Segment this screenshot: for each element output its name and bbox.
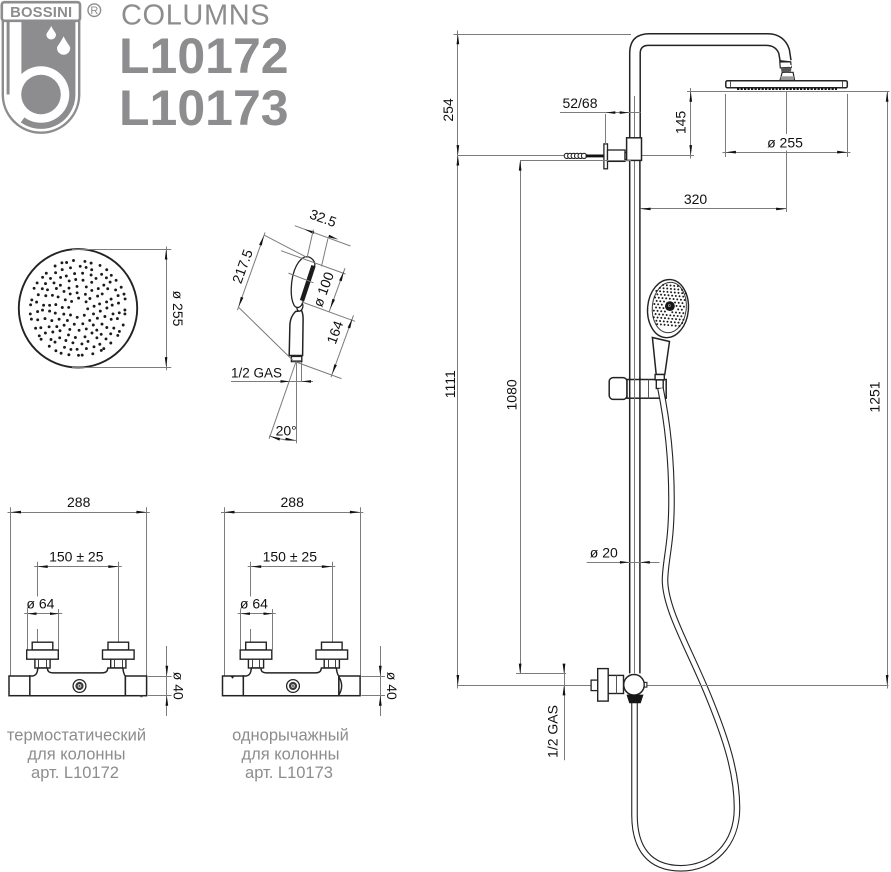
svg-text:термостатический: термостатический <box>7 727 146 745</box>
svg-text:320: 320 <box>684 191 708 207</box>
svg-text:1/2 GAS: 1/2 GAS <box>231 365 282 380</box>
svg-text:COLUMNS: COLUMNS <box>121 0 270 32</box>
svg-text:1111: 1111 <box>442 370 458 398</box>
svg-text:BOSSINI: BOSSINI <box>10 5 72 21</box>
svg-text:164: 164 <box>323 318 346 346</box>
svg-text:ø 40: ø 40 <box>171 672 187 700</box>
svg-text:для колонны: для колонны <box>27 745 125 763</box>
svg-text:L10172: L10172 <box>119 28 289 84</box>
svg-text:1/2 GAS: 1/2 GAS <box>544 705 560 758</box>
svg-text:арт. L10172: арт. L10172 <box>31 764 119 782</box>
svg-text:1080: 1080 <box>504 379 520 410</box>
svg-text:288: 288 <box>281 494 305 510</box>
svg-text:145: 145 <box>673 111 689 135</box>
svg-text:20°: 20° <box>276 423 297 439</box>
svg-text:арт. L10173: арт. L10173 <box>245 764 333 782</box>
svg-text:для колонны: для колонны <box>241 745 339 763</box>
svg-text:R: R <box>90 5 98 17</box>
svg-text:ø 255: ø 255 <box>767 135 803 151</box>
svg-text:однорычажный: однорычажный <box>232 727 349 745</box>
svg-text:ø 40: ø 40 <box>384 672 400 700</box>
svg-text:52/68: 52/68 <box>562 95 597 111</box>
svg-text:L10173: L10173 <box>119 80 289 136</box>
svg-text:ø 255: ø 255 <box>170 291 186 327</box>
svg-text:150 ± 25: 150 ± 25 <box>263 549 318 565</box>
svg-text:217.5: 217.5 <box>229 247 256 286</box>
svg-text:ø 64: ø 64 <box>240 596 268 612</box>
svg-text:1251: 1251 <box>867 381 883 412</box>
svg-text:32.5: 32.5 <box>308 206 339 230</box>
svg-text:ø 64: ø 64 <box>26 596 54 612</box>
svg-text:254: 254 <box>440 98 456 122</box>
svg-text:150 ± 25: 150 ± 25 <box>49 549 104 565</box>
svg-text:ø 20: ø 20 <box>590 545 618 561</box>
svg-text:288: 288 <box>67 494 91 510</box>
